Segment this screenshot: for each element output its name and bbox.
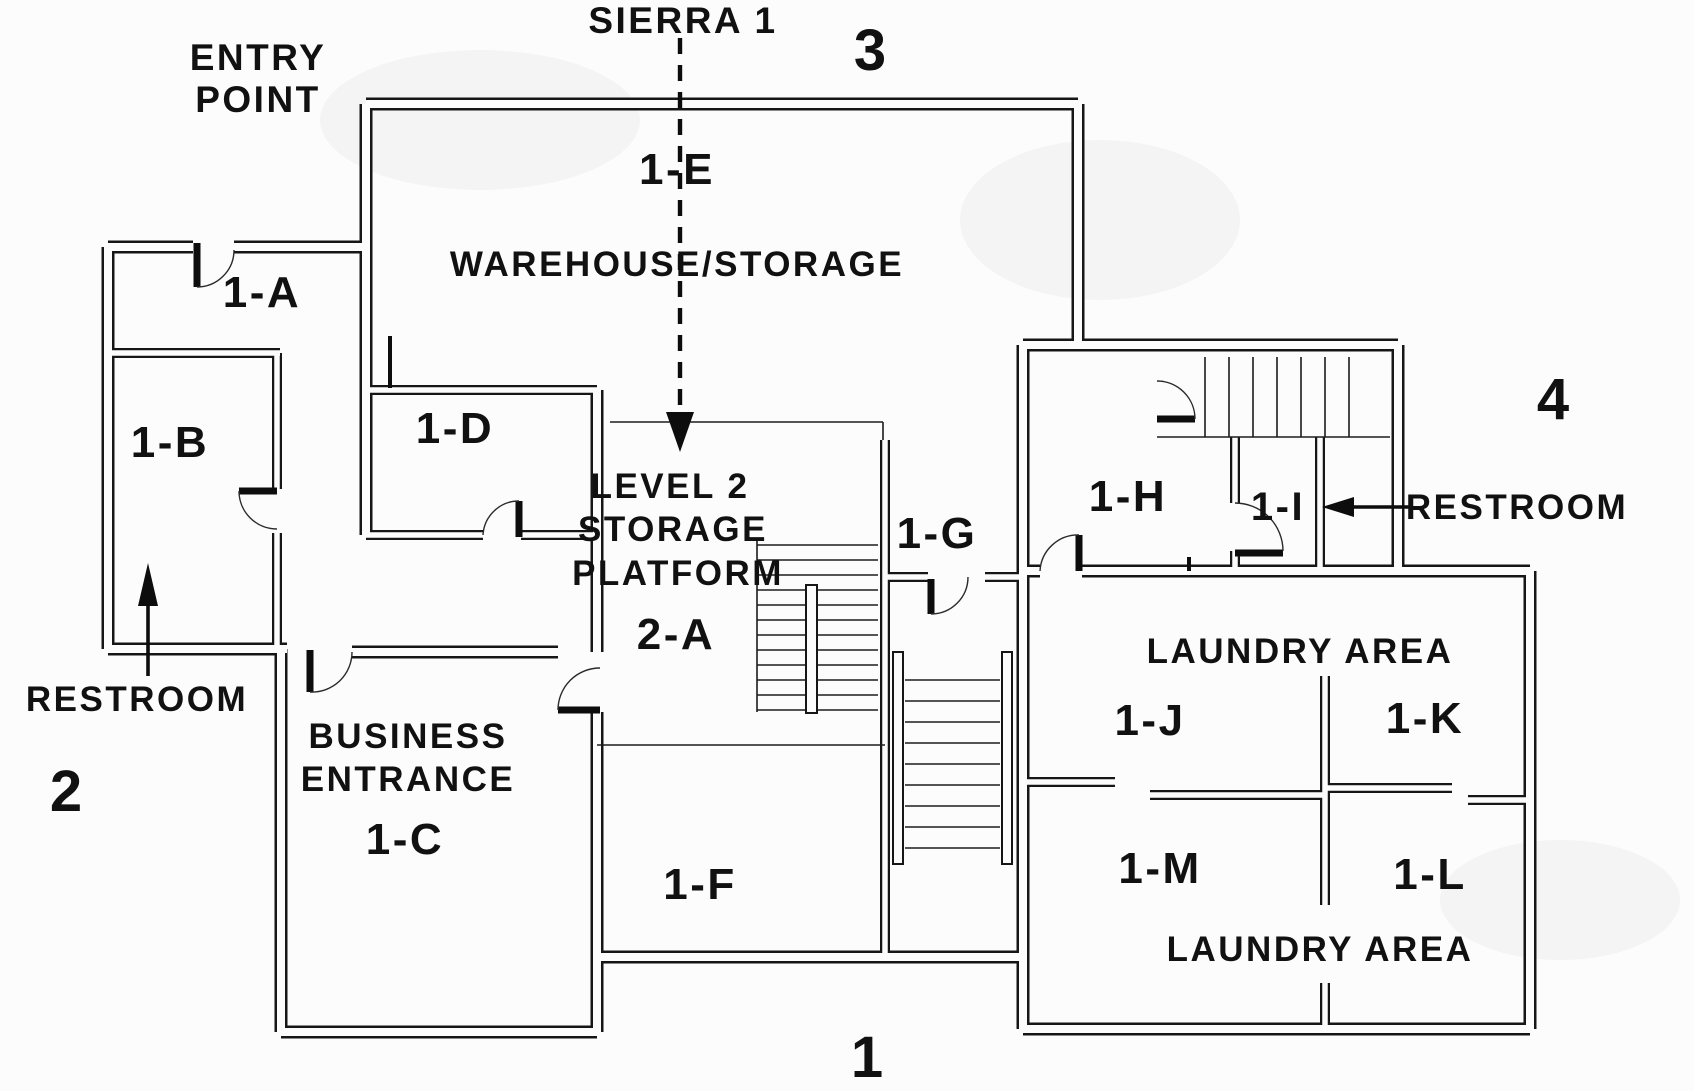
restroom-right-label: RESTROOM [1406, 488, 1628, 527]
room-label-1j: 1-J [1114, 696, 1185, 745]
room-label-2a: 2-A [637, 610, 715, 659]
side-number-3: 3 [854, 18, 886, 83]
room-label-1d: 1-D [416, 404, 494, 453]
wall-cores [108, 104, 1530, 1032]
platform-edge-line [610, 422, 883, 440]
side-number-1: 1 [851, 1025, 883, 1090]
platform-stair-rail [806, 585, 817, 713]
room-label-1b: 1-B [131, 418, 209, 467]
platform-label-line3: PLATFORM [572, 554, 784, 593]
room-label-1c: 1-C [366, 815, 444, 864]
room-label-1h: 1-H [1089, 472, 1167, 521]
laundry-door-arc [1040, 535, 1079, 571]
wall-business-entrance [281, 390, 597, 1032]
room-1b-door-arc [239, 491, 277, 529]
room-label-1m: 1-M [1118, 844, 1201, 893]
entry-point-label-line2: POINT [195, 79, 321, 120]
room-label-1l: 1-L [1393, 850, 1467, 899]
restroom-left-arrowhead-icon [138, 563, 158, 606]
upper-stairs-door-arc [1157, 381, 1195, 419]
warehouse-name-label: WAREHOUSE/STORAGE [450, 245, 904, 284]
room-1c-door-arc [310, 652, 352, 692]
platform-2a-door-arc [558, 668, 600, 710]
upper-stairs-treads [1205, 357, 1349, 437]
floor-plan-canvas: ENTRY POINT SIERRA 1 3 2 4 1 1-E WAREHOU… [0, 0, 1694, 1091]
sierra-arrowhead-icon [666, 412, 694, 452]
room-label-1k: 1-K [1386, 694, 1464, 743]
sierra-title: SIERRA 1 [588, 0, 777, 41]
floor-plan-page: ENTRY POINT SIERRA 1 3 2 4 1 1-E WAREHOU… [0, 0, 1694, 1091]
business-label-line1: BUSINESS [309, 717, 508, 756]
room-label-1i: 1-I [1251, 485, 1305, 529]
entry-point-label-line1: ENTRY [190, 37, 327, 78]
corridor-stair-rail-right [1002, 652, 1012, 864]
side-number-4: 4 [1537, 367, 1569, 432]
restroom-left-label: RESTROOM [26, 680, 248, 719]
laundry-area-top-label: LAUNDRY AREA [1147, 632, 1454, 671]
wall-business-entrance-core [281, 390, 597, 1032]
thin-lines-and-stairs [597, 357, 1390, 864]
restroom-right-arrowhead-icon [1322, 497, 1354, 517]
laundry-area-bottom-label: LAUNDRY AREA [1167, 930, 1474, 969]
platform-label-line2: STORAGE [578, 510, 768, 549]
room-label-1a: 1-A [223, 268, 301, 317]
room-label-1g: 1-G [897, 509, 978, 558]
room-1g-door-arc [931, 577, 968, 614]
corridor-stair-rail-left [893, 652, 903, 864]
room-label-1f: 1-F [663, 860, 737, 909]
corridor-stairs-treads [905, 680, 1000, 848]
platform-label-line1: LEVEL 2 [591, 467, 750, 506]
business-label-line2: ENTRANCE [301, 760, 515, 799]
room-1d-door-arc [483, 501, 519, 535]
side-number-2: 2 [50, 759, 82, 824]
room-label-1e: 1-E [639, 145, 715, 194]
